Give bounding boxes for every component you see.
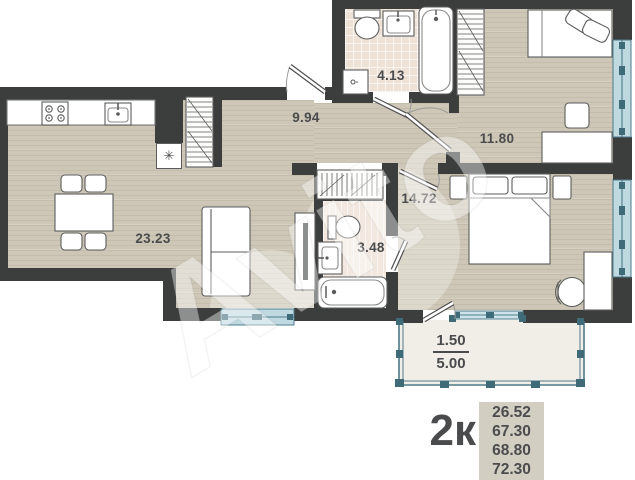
area-label-bedroom-master: 14.72 [394,191,444,206]
area-label-bathroom-main: 4.13 [370,68,412,83]
legend-areas-box: 26.52 67.30 68.80 72.30 [479,402,544,480]
corridor-closet [317,170,383,199]
chair [85,233,106,250]
window-balcony-wall [455,311,523,319]
legend-area-living: 26.52 [492,403,531,422]
area-label-kitchen-living: 23.23 [128,231,178,246]
fridge: ✳ [156,143,182,169]
bathtub-main [419,7,453,94]
wardrobe-master [584,252,612,310]
stove [42,102,68,125]
balcony-area-fraction: 1.50 5.00 [423,332,479,372]
flat-type-label: 2к [420,403,476,459]
nightstand [565,103,589,128]
legend-area-total: 72.30 [492,460,531,479]
bedroom-master-door-leaf [400,171,437,189]
kitchen-counter [7,100,155,125]
floor-plan: ✳ 23.23 9.94 4.13 11.80 14.72 3.48 1.50 … [0,0,635,480]
chair [85,175,106,192]
dining-table [55,194,113,231]
nightstand [450,176,467,199]
balcony-reduced-area: 1.50 [433,332,468,353]
area-label-hallway: 9.94 [282,110,330,125]
kitchen-sink [105,103,131,125]
area-label-bathroom-small: 3.48 [349,240,393,255]
sofa [202,207,250,296]
entrance-door-leaf [290,66,325,92]
toilet-small [328,216,360,239]
chair [61,233,82,250]
chair [61,175,82,192]
toilet-main [354,10,380,39]
fridge-icon: ✳ [164,148,175,164]
desk [542,132,612,163]
bedroom-small-door-arc [406,108,448,114]
bedroom-small-closet [457,9,484,95]
bathroom-cabinet [343,70,368,94]
window-bedroom-master [613,180,631,277]
legend-area-2: 68.80 [492,441,531,460]
single-bed [528,7,612,57]
entrance-door-arc [286,66,290,92]
window-living [221,309,294,325]
legend-area-1: 67.30 [492,422,531,441]
area-label-bedroom-small: 11.80 [472,131,522,146]
bathroom-main-door-leaf [374,99,408,116]
armchair [556,278,586,307]
bathroom-sink-main [383,11,414,36]
bathtub-small [318,277,387,308]
balcony-door-leaf [424,303,453,320]
window-bedroom-small [613,40,631,137]
bathroom-small-door-leaf [393,241,406,270]
tv [303,223,308,280]
tv-stand [295,213,315,290]
bathroom-sink-small [318,242,342,274]
hallway-closet [186,97,213,167]
double-bed [469,174,550,264]
balcony-full-area: 5.00 [423,353,479,372]
bedroom-small-door-leaf [406,114,450,150]
nightstand [553,176,571,199]
